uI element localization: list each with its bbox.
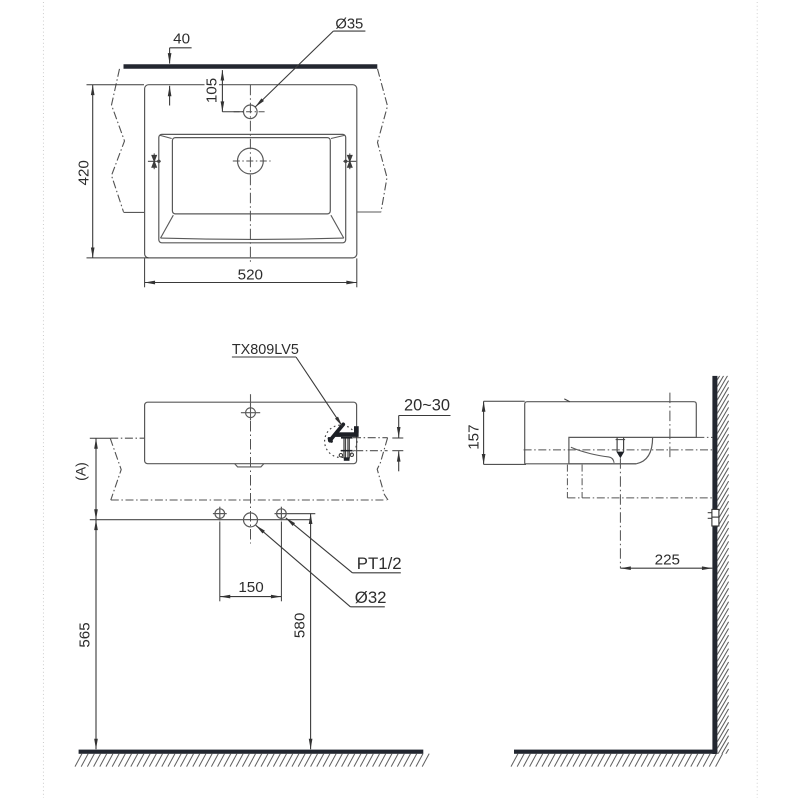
svg-text:105: 105 bbox=[204, 78, 221, 103]
svg-text:40: 40 bbox=[173, 30, 190, 47]
svg-text:TX809LV5: TX809LV5 bbox=[232, 342, 299, 358]
svg-text:Ø35: Ø35 bbox=[335, 16, 363, 32]
svg-text:580: 580 bbox=[292, 613, 309, 638]
svg-text:20~30: 20~30 bbox=[404, 396, 450, 414]
svg-text:150: 150 bbox=[238, 579, 263, 596]
svg-text:PT1/2: PT1/2 bbox=[357, 554, 402, 573]
svg-text:157: 157 bbox=[466, 424, 483, 449]
svg-text:520: 520 bbox=[238, 267, 263, 284]
svg-text:Ø32: Ø32 bbox=[355, 588, 387, 607]
svg-text:565: 565 bbox=[77, 622, 94, 647]
svg-text:(A): (A) bbox=[73, 462, 89, 481]
svg-text:225: 225 bbox=[655, 551, 680, 568]
svg-text:420: 420 bbox=[76, 160, 93, 185]
